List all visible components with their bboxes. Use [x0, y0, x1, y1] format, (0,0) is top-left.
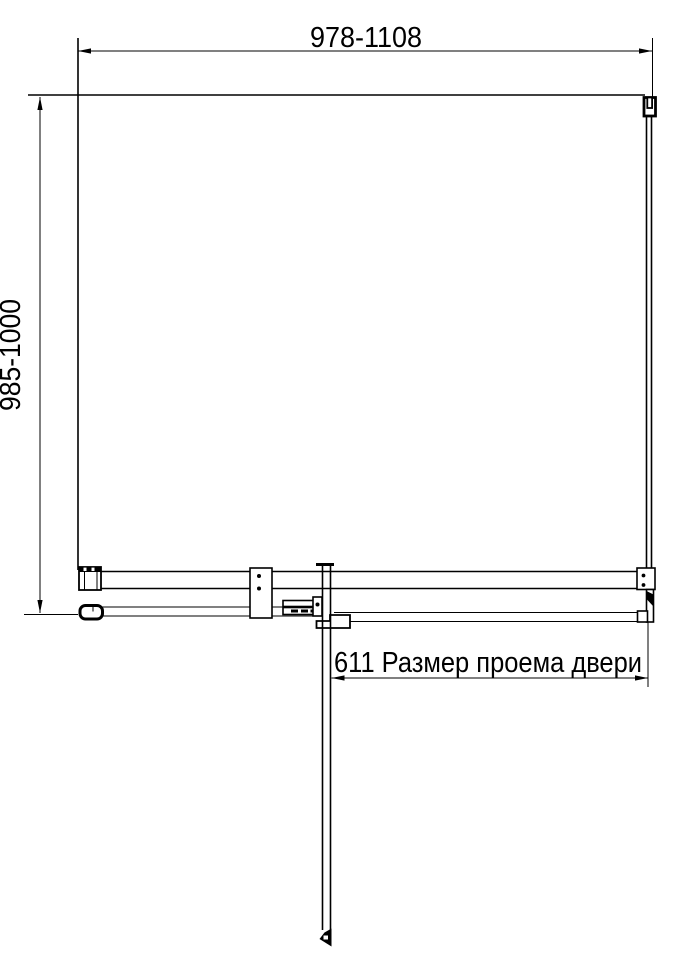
door-bottom-elbow-bracket — [317, 615, 351, 628]
screw-icon — [642, 583, 646, 587]
top-right-clamp-slot — [647, 98, 652, 109]
arrow-left-icon — [78, 48, 91, 53]
technical-drawing: 978-1108 985-1000 611 Размер проема двер… — [0, 0, 686, 970]
center-fixing-bracket — [250, 568, 272, 618]
dimension-top-width: 978-1108 — [78, 22, 653, 97]
height-range-label: 985-1000 — [0, 299, 27, 411]
arrow-up-icon — [37, 97, 42, 110]
screw-icon — [257, 574, 261, 578]
dimension-door-opening: 611 Размер проема двери — [332, 622, 649, 687]
arrow-right-icon — [639, 48, 652, 53]
left-lower-guide — [80, 606, 103, 620]
dimension-left-height: 985-1000 — [0, 97, 78, 615]
door-roller-mechanism — [283, 597, 322, 616]
right-end-assembly — [637, 568, 655, 622]
screw-icon — [642, 574, 646, 578]
drawing-canvas: 978-1108 985-1000 611 Размер проема двер… — [0, 0, 686, 970]
arrow-down-icon — [37, 600, 42, 613]
bottom-rail-assembly — [79, 567, 655, 628]
screw-icon — [316, 603, 320, 607]
door-handle-slot — [324, 936, 329, 940]
screw-icon — [257, 587, 261, 591]
width-range-label: 978-1108 — [310, 22, 422, 54]
door-opening-label: 611 Размер проема двери — [334, 647, 642, 679]
left-wall-profile — [79, 567, 101, 590]
frame-outline — [28, 38, 656, 570]
